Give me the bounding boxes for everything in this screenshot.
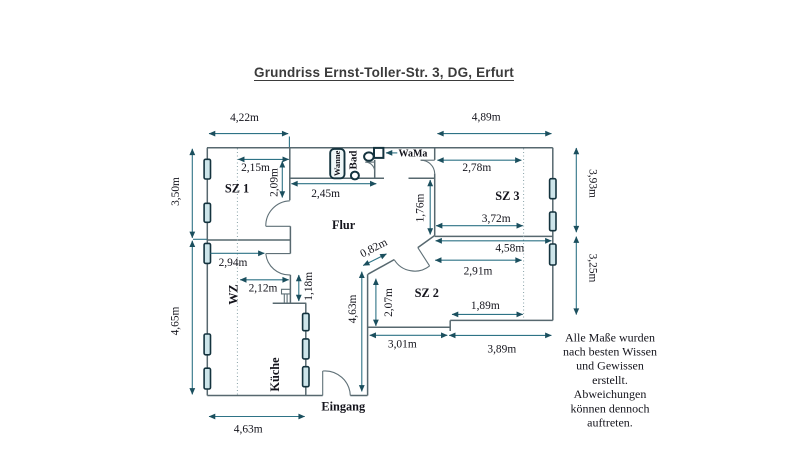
- svg-text:2,15m: 2,15m: [241, 162, 270, 174]
- svg-text:2,07m: 2,07m: [383, 288, 395, 317]
- svg-text:SZ 2: SZ 2: [415, 286, 439, 300]
- svg-text:2,78m: 2,78m: [462, 162, 491, 174]
- svg-text:4,58m: 4,58m: [495, 243, 524, 255]
- svg-text:Bad: Bad: [348, 151, 360, 170]
- svg-text:WaMa: WaMa: [399, 149, 428, 160]
- svg-text:2,45m: 2,45m: [311, 188, 340, 200]
- svg-text:3,50m: 3,50m: [170, 177, 182, 206]
- svg-text:3,01m: 3,01m: [388, 339, 417, 351]
- svg-text:nach besten Wissen: nach besten Wissen: [563, 345, 657, 359]
- svg-text:2,12m: 2,12m: [249, 283, 278, 295]
- svg-text:3,72m: 3,72m: [482, 213, 511, 225]
- svg-text:0,82m: 0,82m: [358, 236, 389, 260]
- svg-text:1,89m: 1,89m: [471, 300, 500, 312]
- svg-text:Abweichungen: Abweichungen: [574, 387, 647, 401]
- svg-text:3,89m: 3,89m: [487, 344, 516, 356]
- svg-text:SZ 1: SZ 1: [225, 182, 249, 196]
- svg-text:Küche: Küche: [268, 357, 282, 392]
- svg-text:2,91m: 2,91m: [464, 266, 493, 278]
- svg-text:4,89m: 4,89m: [472, 111, 501, 123]
- svg-text:1,18m: 1,18m: [303, 272, 315, 301]
- svg-text:3,25m: 3,25m: [587, 254, 599, 283]
- svg-text:4,63m: 4,63m: [347, 294, 359, 323]
- svg-text:auftreten.: auftreten.: [587, 416, 633, 430]
- svg-text:2,94m: 2,94m: [219, 257, 248, 269]
- svg-text:Flur: Flur: [332, 218, 356, 232]
- svg-text:SZ 3: SZ 3: [495, 189, 519, 203]
- svg-text:4,65m: 4,65m: [169, 306, 181, 335]
- svg-text:erstellt.: erstellt.: [592, 373, 628, 387]
- svg-text:können dennoch: können dennoch: [571, 401, 650, 415]
- svg-text:2,09m: 2,09m: [268, 168, 280, 197]
- svg-text:WZ: WZ: [227, 284, 241, 305]
- svg-text:und Gewissen: und Gewissen: [576, 359, 644, 373]
- svg-text:4,63m: 4,63m: [234, 423, 263, 435]
- svg-text:3,93m: 3,93m: [587, 169, 599, 198]
- svg-text:Wanne: Wanne: [332, 150, 342, 176]
- svg-text:Eingang: Eingang: [321, 399, 366, 413]
- svg-text:1,76m: 1,76m: [415, 193, 427, 222]
- svg-text:Alle Maße wurden: Alle Maße wurden: [565, 330, 655, 344]
- svg-text:4,22m: 4,22m: [230, 112, 259, 124]
